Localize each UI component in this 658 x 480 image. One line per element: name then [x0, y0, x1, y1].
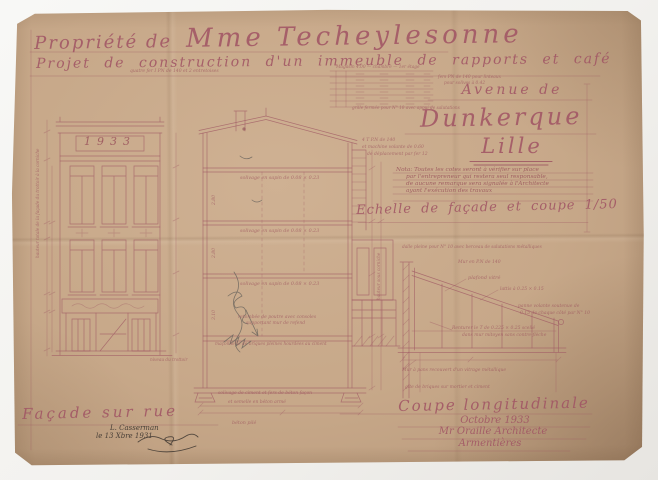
paper-sheet — [9, 7, 646, 467]
scan-background: Propriété de Mme Techeylesonne Projet de… — [0, 0, 658, 480]
